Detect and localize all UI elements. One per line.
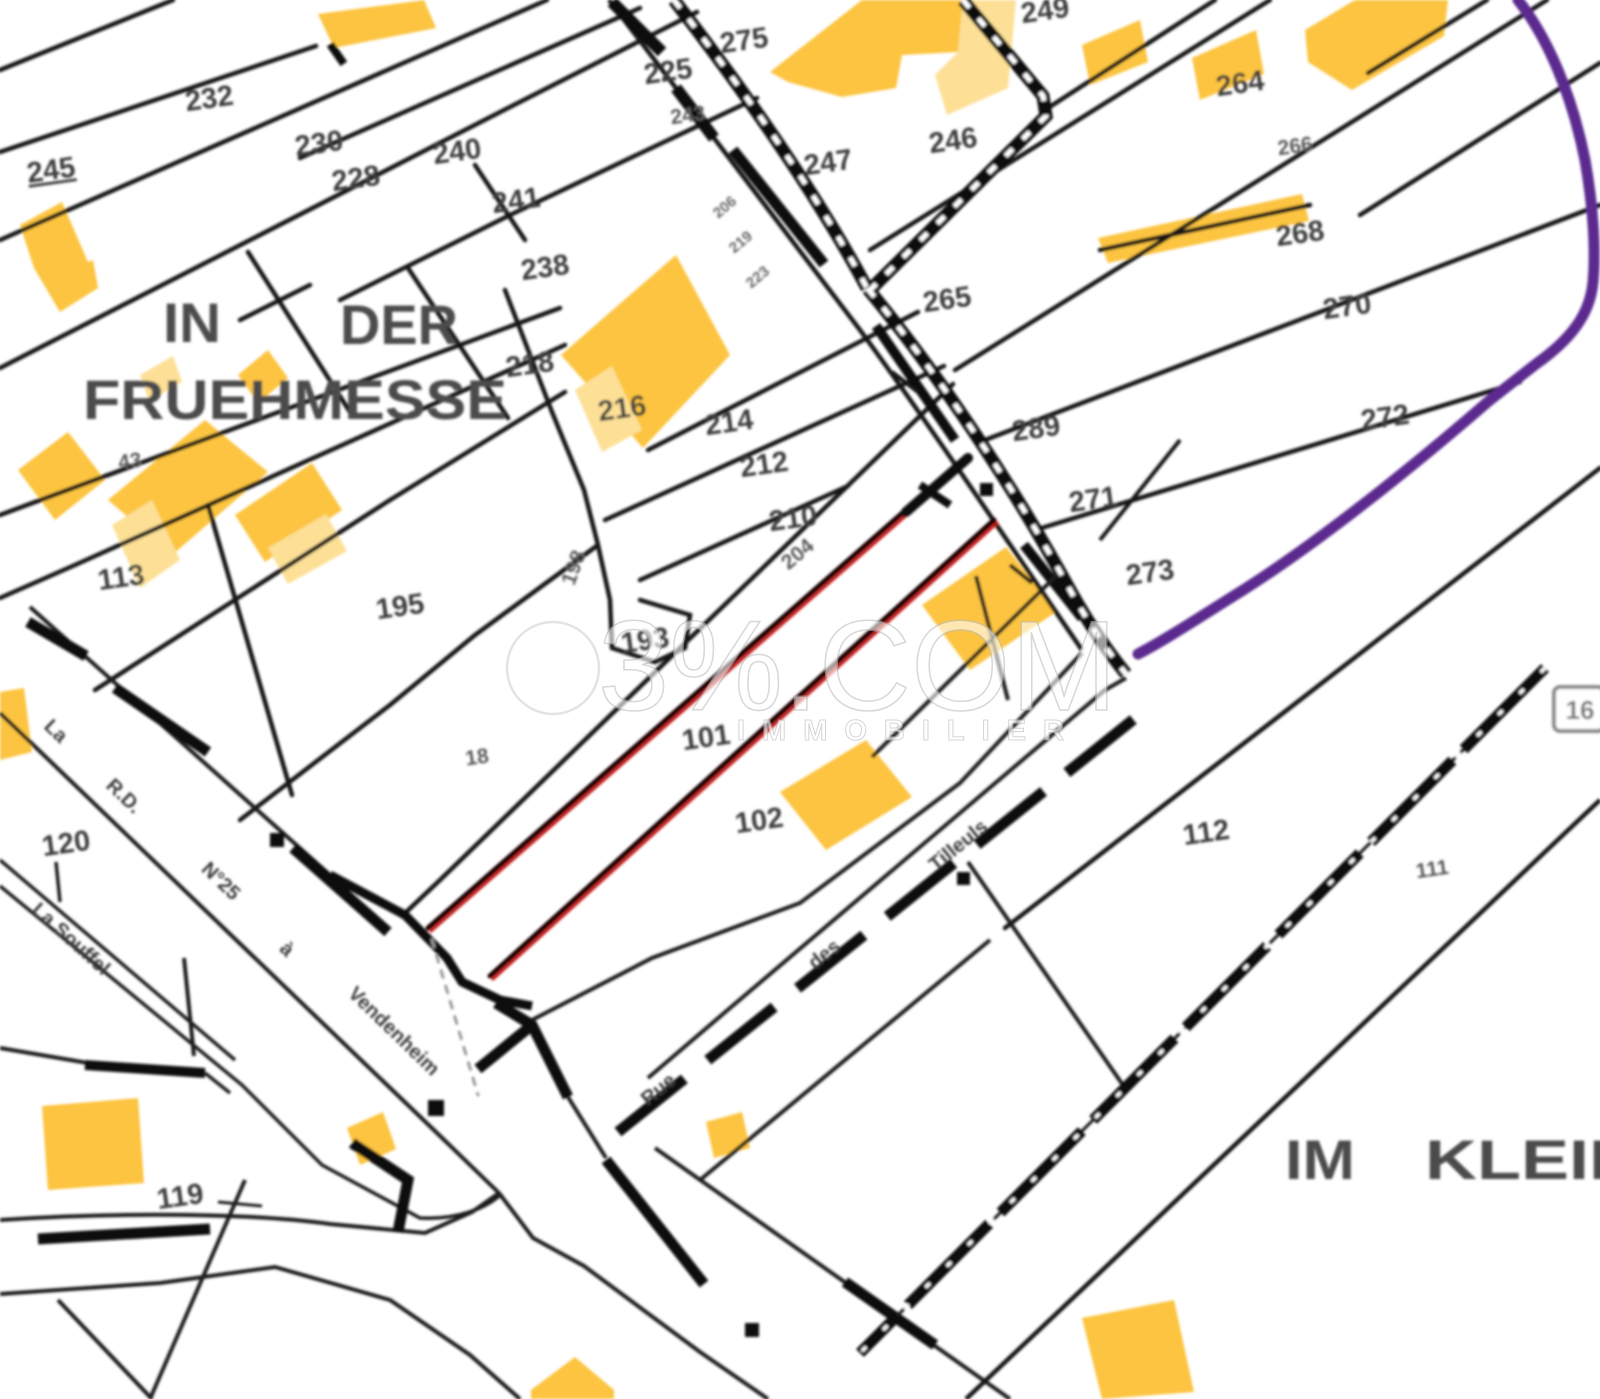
svg-text:271: 271 <box>1067 481 1119 519</box>
svg-text:43: 43 <box>117 448 143 474</box>
svg-text:246: 246 <box>927 122 979 160</box>
svg-text:264: 264 <box>1214 65 1266 103</box>
svg-text:240: 240 <box>431 133 483 171</box>
svg-text:IMMOBILIER: IMMOBILIER <box>737 715 1081 747</box>
svg-text:IM: IM <box>1285 1128 1355 1191</box>
svg-text:214: 214 <box>703 404 755 442</box>
svg-text:265: 265 <box>921 281 973 319</box>
svg-text:KLEINF: KLEINF <box>1425 1128 1600 1191</box>
svg-text:275: 275 <box>718 22 770 60</box>
svg-text:266: 266 <box>1276 133 1314 161</box>
svg-text:273: 273 <box>1124 554 1176 592</box>
svg-text:270: 270 <box>1321 288 1373 326</box>
svg-text:102: 102 <box>733 802 785 840</box>
svg-text:232: 232 <box>183 80 235 118</box>
svg-text:IN: IN <box>163 291 221 354</box>
svg-text:228: 228 <box>330 160 382 198</box>
svg-text:247: 247 <box>802 144 854 182</box>
svg-text:212: 212 <box>738 446 790 484</box>
svg-text:DER: DER <box>340 293 458 356</box>
svg-text:112: 112 <box>1181 814 1232 852</box>
svg-text:268: 268 <box>1274 215 1326 253</box>
svg-text:195: 195 <box>374 588 426 626</box>
svg-text:241: 241 <box>490 182 542 220</box>
svg-text:289: 289 <box>1010 410 1062 448</box>
svg-text:111: 111 <box>1414 856 1450 883</box>
svg-text:16: 16 <box>1566 695 1595 725</box>
svg-text:210: 210 <box>767 500 819 538</box>
svg-text:238: 238 <box>519 249 571 287</box>
svg-text:272: 272 <box>1359 399 1411 437</box>
svg-text:18: 18 <box>464 744 491 770</box>
svg-text:218: 218 <box>504 346 556 384</box>
svg-text:FRUEHMESSE: FRUEHMESSE <box>83 368 507 431</box>
svg-text:120: 120 <box>40 825 92 863</box>
svg-text:243: 243 <box>669 102 707 130</box>
svg-text:230: 230 <box>293 125 345 163</box>
svg-text:225: 225 <box>642 53 694 91</box>
svg-text:245: 245 <box>25 151 77 189</box>
svg-text:119: 119 <box>155 1178 206 1216</box>
svg-text:113: 113 <box>96 559 147 597</box>
svg-text:216: 216 <box>596 390 648 428</box>
